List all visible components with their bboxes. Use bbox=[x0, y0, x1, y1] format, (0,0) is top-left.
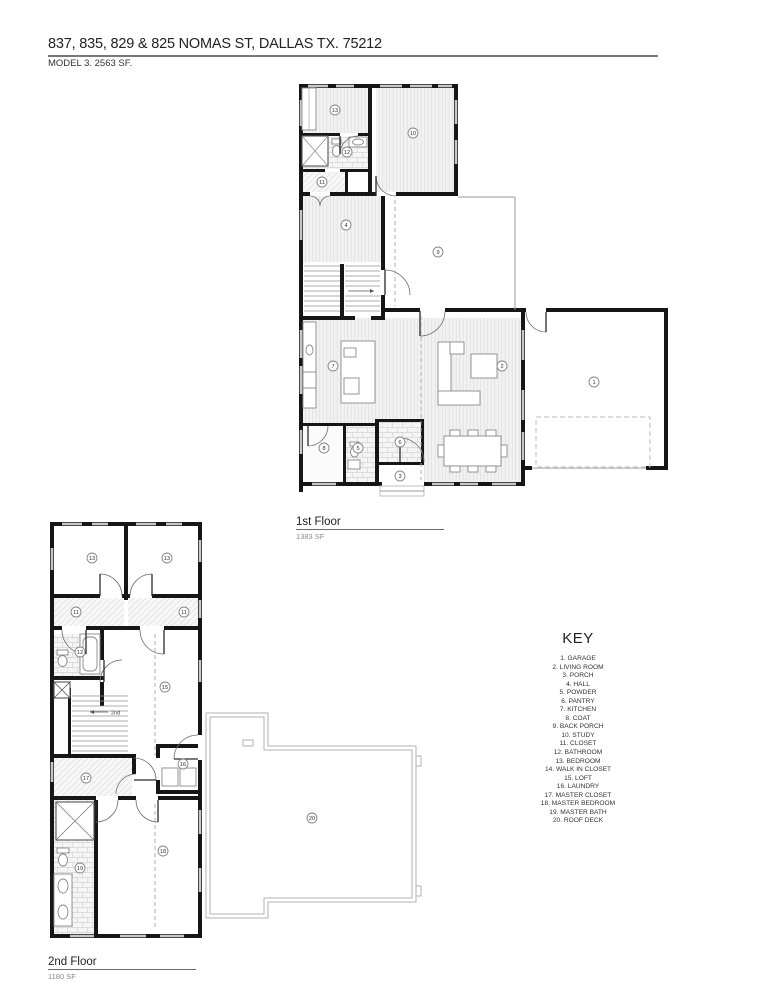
room-marker-number: 9 bbox=[436, 250, 439, 256]
floor-plan-sheet: 837, 835, 829 & 825 NOMAS ST, DALLAS TX.… bbox=[0, 0, 768, 994]
room-marker-number: 10 bbox=[410, 131, 416, 137]
room-marker-number: 12 bbox=[77, 650, 83, 656]
sheet-subtitle: MODEL 3. 2563 SF. bbox=[48, 58, 132, 69]
svg-text:2nd: 2nd bbox=[111, 711, 120, 717]
room-marker-number: 11 bbox=[181, 610, 187, 616]
room-marker-number: 8 bbox=[322, 446, 325, 452]
key-item: 10. STUDY bbox=[500, 732, 656, 741]
room-marker-number: 6 bbox=[398, 440, 401, 446]
key-item: 1. GARAGE bbox=[500, 655, 656, 664]
room-marker-number: 4 bbox=[344, 223, 347, 229]
first-floor-plan: 13121110497218563 bbox=[288, 74, 684, 506]
key-items: 1. GARAGE2. LIVING ROOM3. PORCH4. HALL5.… bbox=[500, 655, 656, 826]
key-item: 12. BATHROOM bbox=[500, 749, 656, 758]
key-item: 18. MASTER BEDROOM bbox=[500, 800, 656, 809]
key-item: 5. POWDER bbox=[500, 689, 656, 698]
room-marker-number: 12 bbox=[344, 150, 350, 156]
key-item: 9. BACK PORCH bbox=[500, 723, 656, 732]
room-marker-number: 13 bbox=[89, 556, 95, 562]
key-item: 17. MASTER CLOSET bbox=[500, 792, 656, 801]
room-marker-number: 16 bbox=[180, 762, 186, 768]
room-marker-number: 15 bbox=[162, 685, 168, 691]
key-item: 7. KITCHEN bbox=[500, 706, 656, 715]
key-item: 19. MASTER BATH bbox=[500, 809, 656, 818]
key-item: 14. WALK IN CLOSET bbox=[500, 766, 656, 775]
room-marker-number: 20 bbox=[309, 816, 315, 822]
key-item: 8. COAT bbox=[500, 715, 656, 724]
key-heading: KEY bbox=[500, 630, 656, 647]
room-marker-number: 7 bbox=[331, 364, 334, 370]
key-item: 16. LAUNDRY bbox=[500, 783, 656, 792]
room-marker-number: 3 bbox=[398, 474, 401, 480]
key-legend: KEY 1. GARAGE2. LIVING ROOM3. PORCH4. HA… bbox=[500, 630, 656, 826]
key-item: 3. PORCH bbox=[500, 672, 656, 681]
second-floor-area: 1180 SF bbox=[48, 972, 196, 981]
room-marker-number: 5 bbox=[356, 446, 359, 452]
second-floor-name: 2nd Floor bbox=[48, 956, 196, 970]
key-item: 6. PANTRY bbox=[500, 698, 656, 707]
room-marker-number: 13 bbox=[164, 556, 170, 562]
title-rule bbox=[48, 55, 658, 57]
key-item: 20. ROOF DECK bbox=[500, 817, 656, 826]
room-marker-number: 1 bbox=[592, 380, 595, 386]
room-marker-number: 17 bbox=[83, 776, 89, 782]
room-marker-number: 18 bbox=[160, 849, 166, 855]
room-marker-number: 11 bbox=[73, 610, 79, 616]
room-marker-number: 19 bbox=[77, 866, 83, 872]
key-item: 2. LIVING ROOM bbox=[500, 664, 656, 673]
second-floor-plan: 2nd 1313111112151617191820 bbox=[38, 510, 434, 952]
key-item: 11. CLOSET bbox=[500, 740, 656, 749]
sheet-title: 837, 835, 829 & 825 NOMAS ST, DALLAS TX.… bbox=[48, 36, 382, 52]
room-marker-number: 13 bbox=[332, 108, 338, 114]
key-item: 4. HALL bbox=[500, 681, 656, 690]
key-item: 15. LOFT bbox=[500, 775, 656, 784]
second-floor-label: 2nd Floor 1180 SF bbox=[48, 956, 196, 981]
room-marker-number: 11 bbox=[319, 180, 325, 186]
key-item: 13. BEDROOM bbox=[500, 758, 656, 767]
room-marker-number: 2 bbox=[500, 364, 503, 370]
